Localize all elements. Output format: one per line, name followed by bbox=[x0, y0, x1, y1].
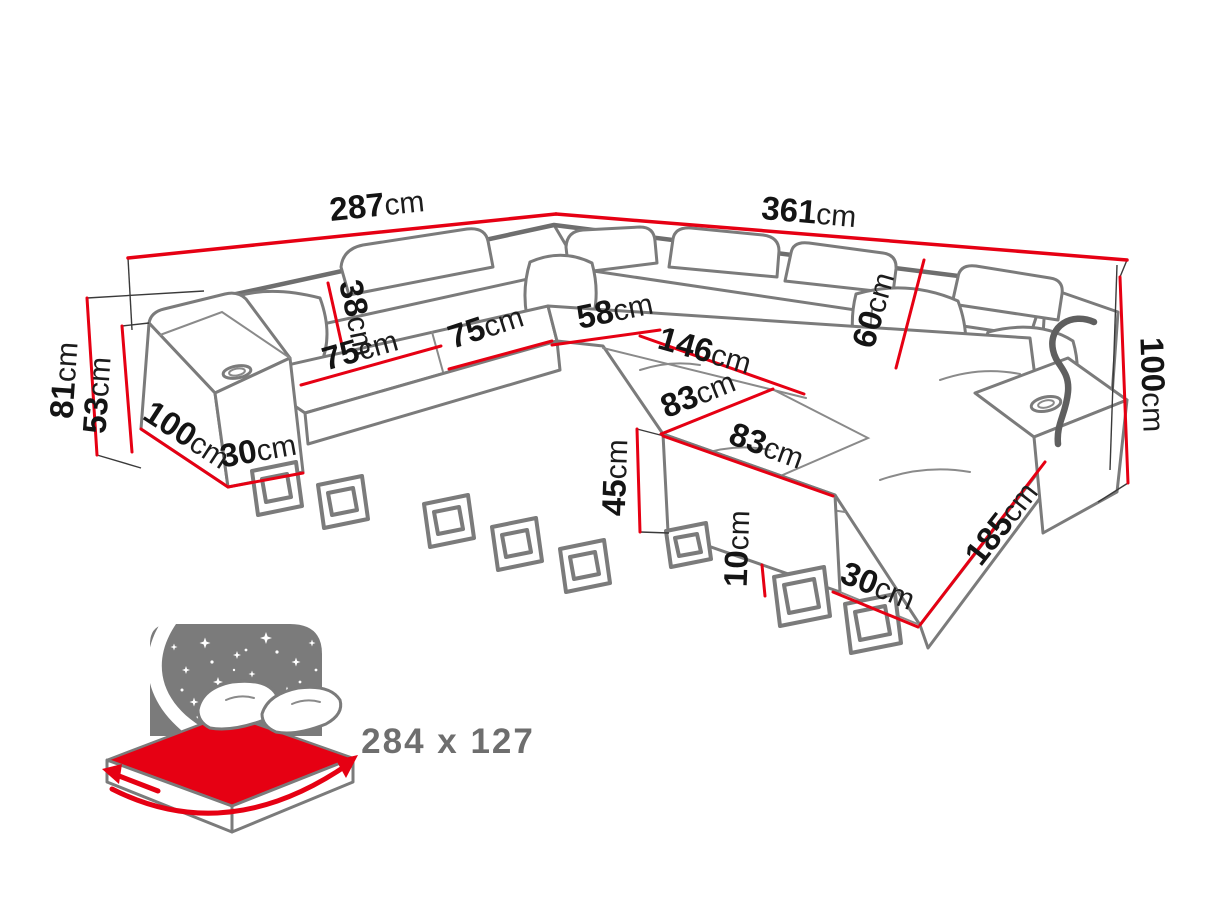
dim-line-leg-height bbox=[762, 565, 765, 596]
leg bbox=[560, 540, 610, 592]
dim-label-back-width-left: 287cm bbox=[328, 181, 426, 228]
dim-line-chaise-front-height bbox=[637, 429, 640, 532]
leg bbox=[424, 495, 474, 547]
leg bbox=[666, 523, 711, 567]
dim-label-chaise-front-height: 45cm bbox=[595, 439, 635, 517]
diagram-canvas: 287cm 361cm 81cm 53cm 100cm 30cm 38cm 75… bbox=[0, 0, 1214, 910]
dim-line-armrest-height bbox=[122, 326, 132, 452]
sleeping-function-icon bbox=[102, 624, 358, 832]
sofa-dimension-diagram: 287cm 361cm 81cm 53cm 100cm 30cm 38cm 75… bbox=[0, 0, 1214, 910]
dim-label-leg-height: 10cm bbox=[717, 510, 757, 588]
sleeping-size-label: 284 x 127 bbox=[361, 722, 535, 761]
leg bbox=[774, 567, 830, 626]
leg bbox=[318, 476, 368, 528]
leg bbox=[492, 518, 542, 570]
leg bbox=[252, 462, 302, 515]
headrest-flap bbox=[669, 228, 779, 277]
dim-label-right-total-height: 100cm bbox=[1133, 336, 1173, 432]
dim-label-back-width-right: 361cm bbox=[760, 189, 858, 234]
